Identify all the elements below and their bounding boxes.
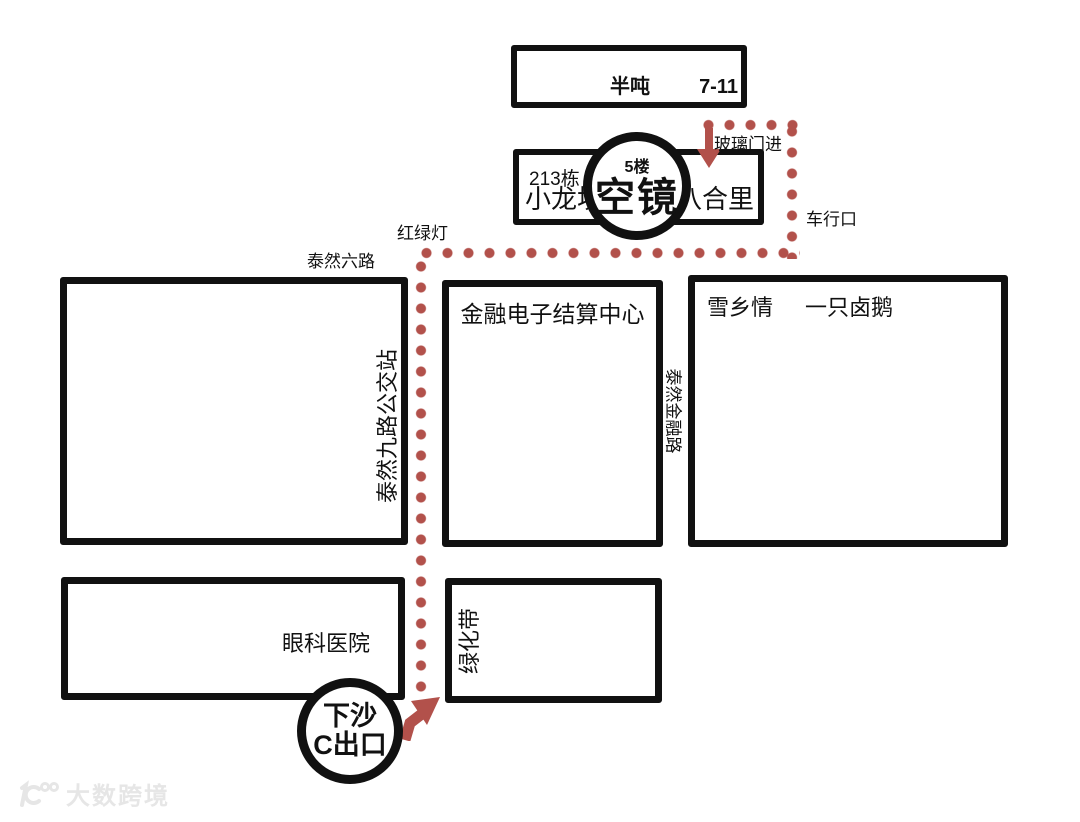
100-logo-icon: [14, 779, 60, 809]
building-finance-center: 金融电子结算中心: [442, 280, 663, 547]
building-bus-block: [60, 277, 408, 545]
route-segment-middle: [416, 247, 800, 259]
road-tairan6-label: 泰然六路: [307, 247, 375, 272]
metro-exit-line1: 下沙: [323, 702, 377, 731]
glass-door-label: 玻璃门进: [714, 130, 782, 155]
car-entrance-label: 车行口: [806, 205, 857, 230]
store-bandun-label: 半吨: [610, 70, 650, 99]
finance-center-label: 金融电子结算中心: [461, 295, 645, 329]
metro-exit-badge: 下沙 C出口: [297, 678, 403, 784]
hospital-label: 眼科医院: [282, 626, 370, 658]
watermark-brand: 大数跨境: [66, 776, 170, 811]
venue-name-label: 空镜: [595, 177, 679, 219]
venue-floor-label: 5楼: [625, 153, 650, 177]
building-bandun: 半吨 7-11: [511, 45, 747, 108]
road-tairan-finance-label: 泰然金融路: [662, 369, 684, 454]
watermark: 大数跨境: [14, 776, 170, 811]
direction-map: 半吨 7-11 213栋 小龙坎 八合里 5楼 空镜 玻璃门进 车行口 红绿灯 …: [0, 0, 1080, 822]
venue-badge: 5楼 空镜: [583, 132, 691, 240]
goose-store2-label: 一只卤鹅: [805, 290, 893, 322]
metro-exit-line2: C出口: [313, 731, 387, 760]
route-segment-left: [415, 256, 427, 696]
store-711-label: 7-11: [699, 76, 738, 99]
traffic-light-label: 红绿灯: [397, 219, 448, 244]
green-belt-label: 绿化带: [458, 601, 482, 681]
building-goose: 雪乡情 一只卤鹅: [688, 275, 1008, 547]
route-segment-right: [786, 121, 798, 259]
bus-stop-label: 泰然九路公交站: [376, 346, 400, 506]
goose-store1-label: 雪乡情: [707, 290, 773, 322]
